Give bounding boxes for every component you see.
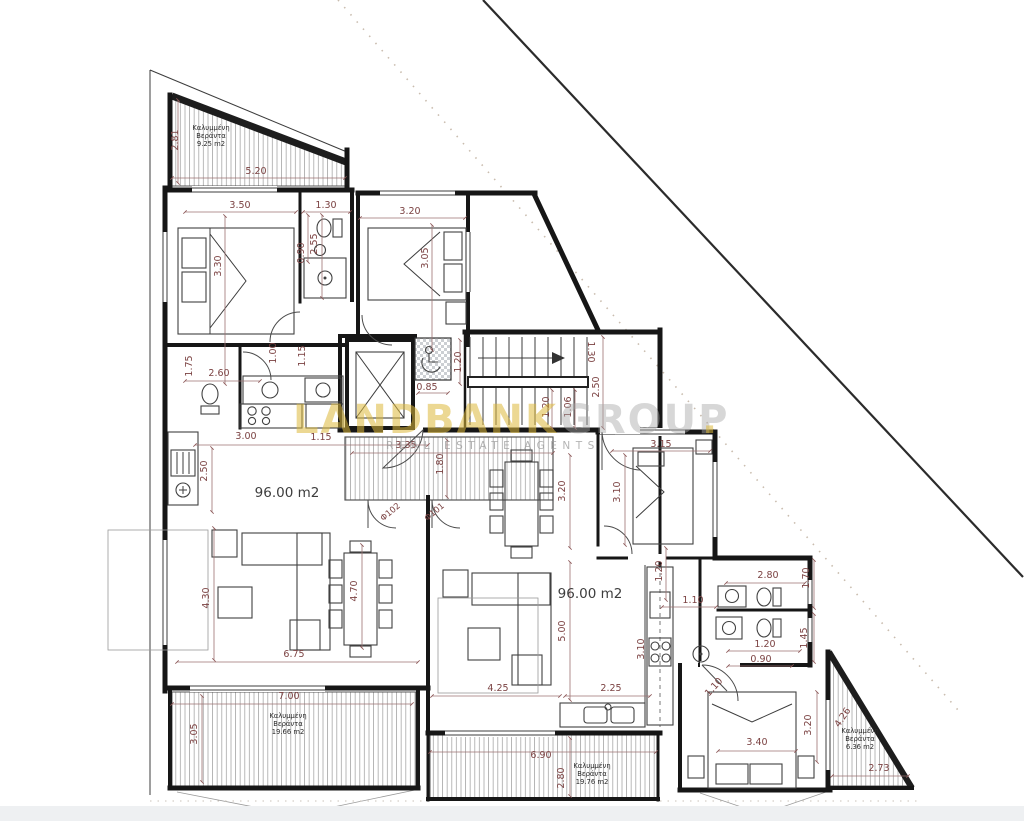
dimension-label: 1.20: [654, 560, 665, 581]
apartment-area-label: 96.00 m2: [255, 485, 320, 501]
dimension-label: 2.55: [309, 233, 320, 254]
dimension-label: 1.20: [754, 639, 775, 650]
sink-b: [584, 707, 607, 723]
dimension-label: 3.40: [746, 737, 767, 748]
veranda-label: Βεράντα: [845, 735, 875, 743]
coffee-table-b: [468, 628, 500, 660]
veranda-label: Καλυμμένη: [269, 712, 306, 720]
accessible-wc: [415, 338, 451, 380]
bed-2: [368, 228, 466, 324]
floor-plan-drawing: 2.815.203.501.303.203.302.550.903.051.00…: [0, 0, 1024, 821]
sofa-b: [438, 570, 551, 693]
dimension-label: 2.81: [170, 129, 181, 150]
toilet-wc-a: [202, 384, 218, 404]
bathroom-b1: [718, 586, 781, 607]
dimension-label: 1.80: [435, 453, 446, 474]
veranda-label: 9.25 m2: [197, 140, 225, 148]
dimension-label: 1.70: [801, 567, 812, 588]
window: [464, 232, 472, 292]
veranda-label: 6.36 m2: [846, 743, 874, 751]
dimension-label: 1.15: [297, 345, 308, 366]
watermark-tagline: REAL ESTATE AGENTS: [386, 440, 600, 452]
dimension-label: 1.10: [682, 595, 703, 606]
toilet-b2: [757, 619, 771, 637]
window: [711, 462, 719, 537]
veranda-label: Βεράντα: [273, 720, 303, 728]
window: [161, 232, 169, 302]
dimension-label: 1.00: [268, 342, 279, 363]
sliding-door: [445, 729, 555, 737]
dimension-label: 0.85: [416, 382, 437, 393]
veranda-label: Καλυμμένη: [573, 762, 610, 770]
dimension-label: 6.90: [530, 750, 551, 761]
dimension-label: 2.80: [556, 767, 567, 788]
dimension-label: 3.10: [612, 481, 623, 502]
bed-1: [178, 228, 294, 334]
dining-table-a: [329, 541, 392, 657]
dimension-label: 2.60: [208, 368, 229, 379]
window: [192, 186, 277, 194]
veranda-label: 19.66 m2: [272, 728, 305, 736]
floor-plan-page: 2.815.203.501.303.203.302.550.903.051.00…: [0, 0, 1024, 821]
bathroom-a: [304, 219, 346, 298]
dimension-label: 4.30: [201, 587, 212, 608]
veranda-label: Βεράντα: [577, 770, 607, 778]
dimension-label: 0.90: [296, 242, 307, 263]
veranda-label: Βεράντα: [196, 132, 226, 140]
window: [161, 540, 169, 645]
dimension-label: 1.30: [315, 200, 336, 211]
dimension-label: 3.50: [229, 200, 250, 211]
veranda-label: Καλυμμένη: [841, 727, 878, 735]
dimension-label: 3.00: [235, 431, 256, 442]
dimension-label: 2.80: [757, 570, 778, 581]
dimension-label: 3.05: [189, 723, 200, 744]
dimension-label: 3.20: [803, 714, 814, 735]
dimension-label: 7.00: [278, 691, 299, 702]
page-bottom-strip: [0, 806, 1024, 821]
bed-3: [633, 440, 712, 544]
sliding-door: [190, 684, 325, 692]
dimension-label: 3.20: [399, 206, 420, 217]
dimension-label: 1.30: [585, 341, 596, 362]
sink-a: [262, 382, 278, 398]
dimension-label: 5.00: [557, 620, 568, 641]
dimension-label: 2.25: [600, 683, 621, 694]
watermark-brand-primary: LANDBANK: [293, 397, 558, 443]
dimension-label: 4.70: [349, 580, 360, 601]
dimension-label: 1.75: [184, 355, 195, 376]
dimension-label: 6.75: [283, 649, 304, 660]
dimension-label: 2.50: [199, 460, 210, 481]
coffee-table-a: [218, 587, 252, 618]
stair-stringer: [468, 377, 588, 387]
veranda-label: 19.76 m2: [576, 778, 609, 786]
door-number-label: Φ102: [379, 501, 403, 523]
dimension-label: 3.05: [420, 247, 431, 268]
apartment-area-label: 96.00 m2: [558, 586, 623, 602]
veranda-label: Καλυμμένη: [192, 124, 229, 132]
dimension-label: 3.30: [213, 255, 224, 276]
dimension-label: 2.73: [868, 763, 889, 774]
dimension-label: 4.25: [487, 683, 508, 694]
dimension-label: 1.45: [799, 627, 810, 648]
toilet-b1: [757, 588, 771, 606]
dimension-label: 0.90: [750, 654, 771, 665]
dimension-label: 5.20: [245, 166, 266, 177]
dimension-label: 1.20: [453, 351, 464, 372]
sofa-a: [108, 530, 330, 650]
dimension-label: 1.10: [703, 676, 725, 699]
watermark-dot: .: [702, 397, 719, 443]
dimension-label: 3.10: [636, 638, 647, 659]
dimension-label: 2.50: [591, 376, 602, 397]
sliding-door: [824, 700, 832, 770]
dimension-label: 3.20: [557, 480, 568, 501]
rug-a: [108, 530, 208, 650]
window: [380, 189, 455, 197]
rug-b: [438, 598, 538, 693]
